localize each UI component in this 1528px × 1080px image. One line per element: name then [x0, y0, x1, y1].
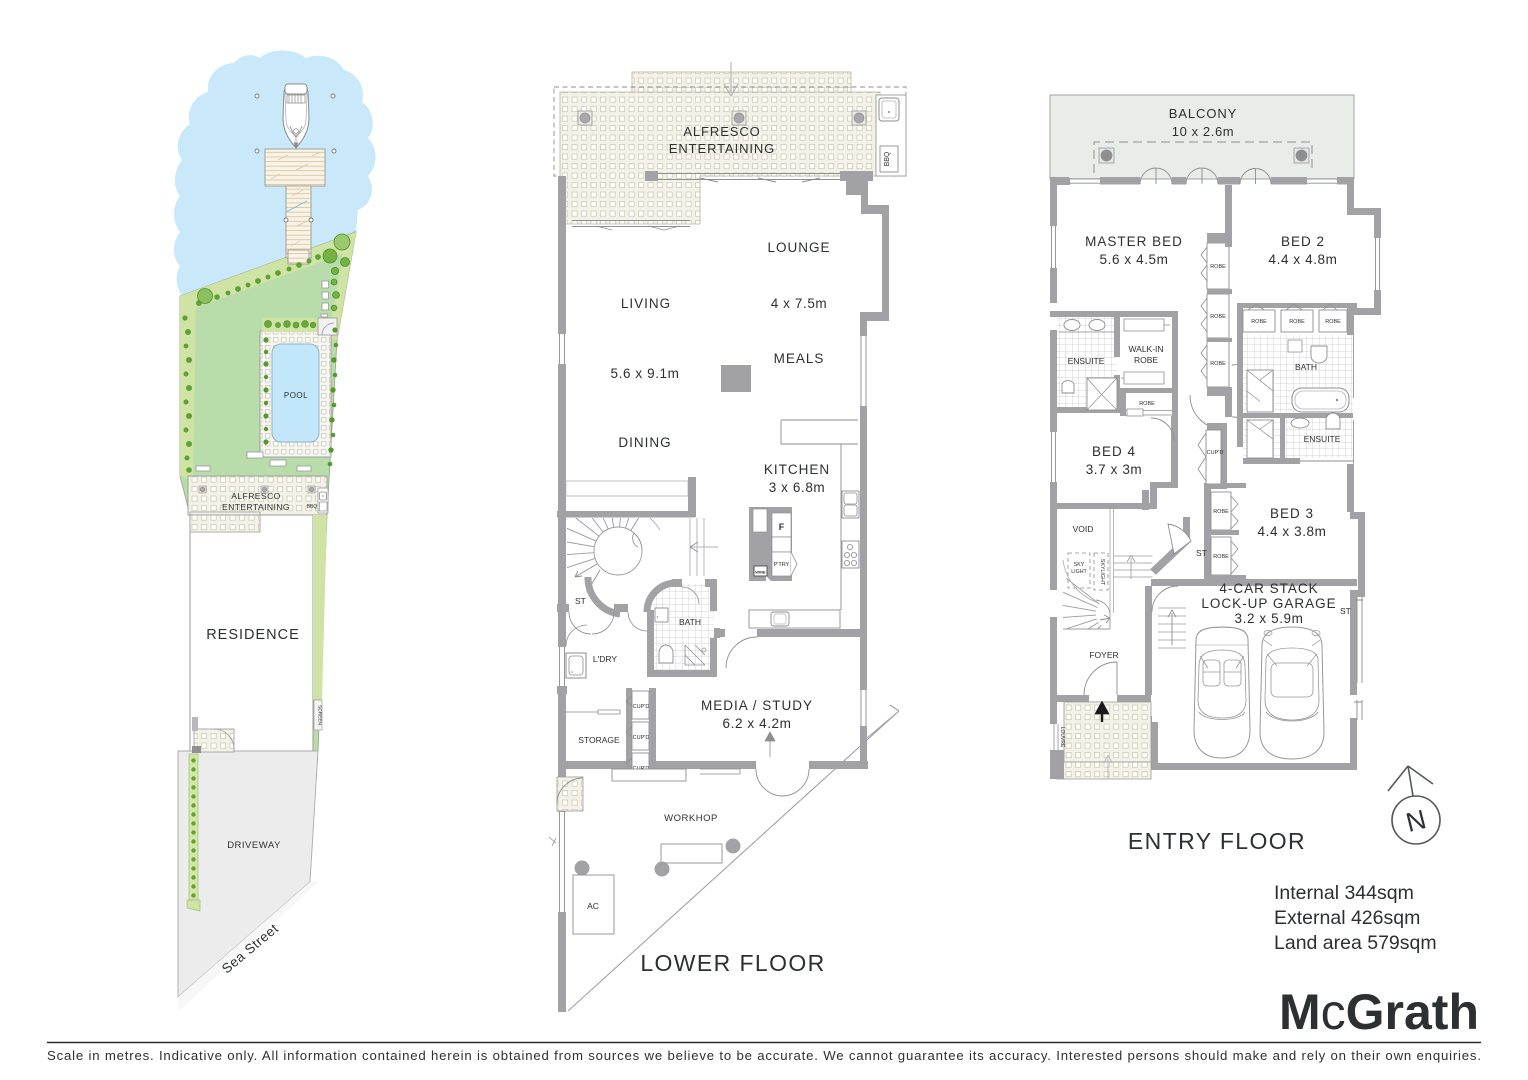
svg-text:ENSUITE: ENSUITE: [1304, 434, 1341, 444]
svg-text:DINING: DINING: [618, 435, 671, 450]
svg-text:MASTER BED: MASTER BED: [1085, 234, 1183, 249]
svg-text:10 x 2.6m: 10 x 2.6m: [1172, 124, 1235, 139]
svg-text:3 x 6.8m: 3 x 6.8m: [769, 480, 826, 495]
svg-text:ENTERTAINING: ENTERTAINING: [669, 141, 775, 156]
svg-text:4 x 7.5m: 4 x 7.5m: [771, 296, 828, 311]
svg-text:Internal 344sqm: Internal 344sqm: [1274, 882, 1414, 904]
svg-text:F: F: [779, 522, 785, 532]
svg-text:DRIVEWAY: DRIVEWAY: [227, 840, 281, 851]
svg-text:LOUNGE: LOUNGE: [767, 240, 830, 255]
svg-text:LIVING: LIVING: [621, 296, 671, 311]
svg-text:ROBE: ROBE: [1325, 319, 1341, 325]
svg-text:3.2 x 5.9m: 3.2 x 5.9m: [1234, 611, 1303, 626]
svg-text:WALK-IN: WALK-IN: [1128, 344, 1163, 354]
svg-text:SKYLIGHT: SKYLIGHT: [1099, 559, 1105, 586]
svg-text:ALFRESCO: ALFRESCO: [231, 491, 281, 501]
svg-text:6.2 x 4.2m: 6.2 x 4.2m: [722, 716, 791, 731]
svg-text:MEDIA / STUDY: MEDIA / STUDY: [701, 698, 813, 713]
svg-text:FOYER: FOYER: [1089, 650, 1118, 660]
svg-text:ENTRY FLOOR: ENTRY FLOOR: [1128, 828, 1306, 854]
svg-text:ROBE: ROBE: [1139, 401, 1155, 407]
svg-text:CUP'D: CUP'D: [633, 735, 650, 741]
svg-text:BALCONY: BALCONY: [1169, 106, 1237, 121]
svg-text:KITCHEN: KITCHEN: [764, 462, 830, 477]
svg-text:ST: ST: [1196, 548, 1207, 558]
svg-text:4.4 x 3.8m: 4.4 x 3.8m: [1257, 524, 1326, 539]
svg-text:ENSUITE: ENSUITE: [1068, 356, 1105, 366]
svg-text:CUP'D: CUP'D: [633, 704, 650, 710]
svg-text:3.7 x 3m: 3.7 x 3m: [1086, 462, 1143, 477]
svg-text:Scale in metres. Indicative on: Scale in metres. Indicative only. All in…: [47, 1048, 1481, 1063]
svg-text:BBQ: BBQ: [884, 151, 891, 166]
svg-text:P'TRY: P'TRY: [774, 562, 790, 568]
svg-text:ROBE: ROBE: [1210, 264, 1226, 270]
svg-text:LIGHT: LIGHT: [1071, 569, 1087, 575]
svg-text:SKY: SKY: [1074, 562, 1085, 568]
svg-text:SCREEN: SCREEN: [317, 705, 323, 726]
svg-text:ROBE: ROBE: [1210, 314, 1226, 320]
svg-text:ENTERTAINING: ENTERTAINING: [222, 502, 290, 512]
svg-text:ROBE: ROBE: [1289, 319, 1305, 325]
svg-text:BATH: BATH: [679, 617, 701, 627]
svg-text:ROBE: ROBE: [1210, 361, 1226, 367]
svg-text:STORAGE: STORAGE: [578, 735, 620, 745]
svg-text:McGrath: McGrath: [1279, 984, 1479, 1040]
svg-text:ALFRESCO: ALFRESCO: [683, 124, 760, 139]
svg-text:BBQ: BBQ: [307, 504, 318, 510]
svg-text:ST: ST: [575, 596, 586, 606]
svg-text:5.6 x 9.1m: 5.6 x 9.1m: [610, 366, 679, 381]
svg-text:LOCK-UP GARAGE: LOCK-UP GARAGE: [1201, 596, 1336, 611]
svg-text:AC: AC: [587, 901, 599, 911]
svg-text:VOID: VOID: [1073, 524, 1094, 534]
svg-text:LOUVRE: LOUVRE: [1059, 727, 1065, 748]
svg-text:POOL: POOL: [284, 391, 308, 400]
svg-text:4.4 x 4.8m: 4.4 x 4.8m: [1268, 252, 1337, 267]
svg-text:BED 4: BED 4: [1092, 444, 1136, 459]
svg-text:External 426sqm: External 426sqm: [1274, 907, 1420, 929]
svg-text:ST: ST: [1340, 606, 1351, 616]
svg-text:BATH: BATH: [1295, 362, 1317, 372]
svg-text:MEALS: MEALS: [774, 351, 825, 366]
svg-text:WORKHOP: WORKHOP: [664, 813, 718, 824]
svg-text:RESIDENCE: RESIDENCE: [206, 627, 300, 643]
svg-text:WINE: WINE: [755, 570, 766, 575]
svg-text:ROBE: ROBE: [1213, 554, 1229, 560]
svg-text:ROBE: ROBE: [1251, 319, 1267, 325]
svg-text:5.6 x 4.5m: 5.6 x 4.5m: [1099, 252, 1168, 267]
svg-text:L'DRY: L'DRY: [593, 654, 617, 664]
svg-text:ROBE: ROBE: [1213, 509, 1229, 515]
svg-text:4-CAR STACK: 4-CAR STACK: [1219, 581, 1318, 596]
svg-text:LOWER FLOOR: LOWER FLOOR: [640, 950, 825, 976]
svg-text:CUP'D: CUP'D: [1207, 450, 1224, 456]
svg-text:BED 3: BED 3: [1270, 506, 1314, 521]
svg-text:BED 2: BED 2: [1281, 234, 1325, 249]
svg-text:ROBE: ROBE: [1134, 355, 1158, 365]
svg-text:Land area 579sqm: Land area 579sqm: [1274, 932, 1437, 954]
